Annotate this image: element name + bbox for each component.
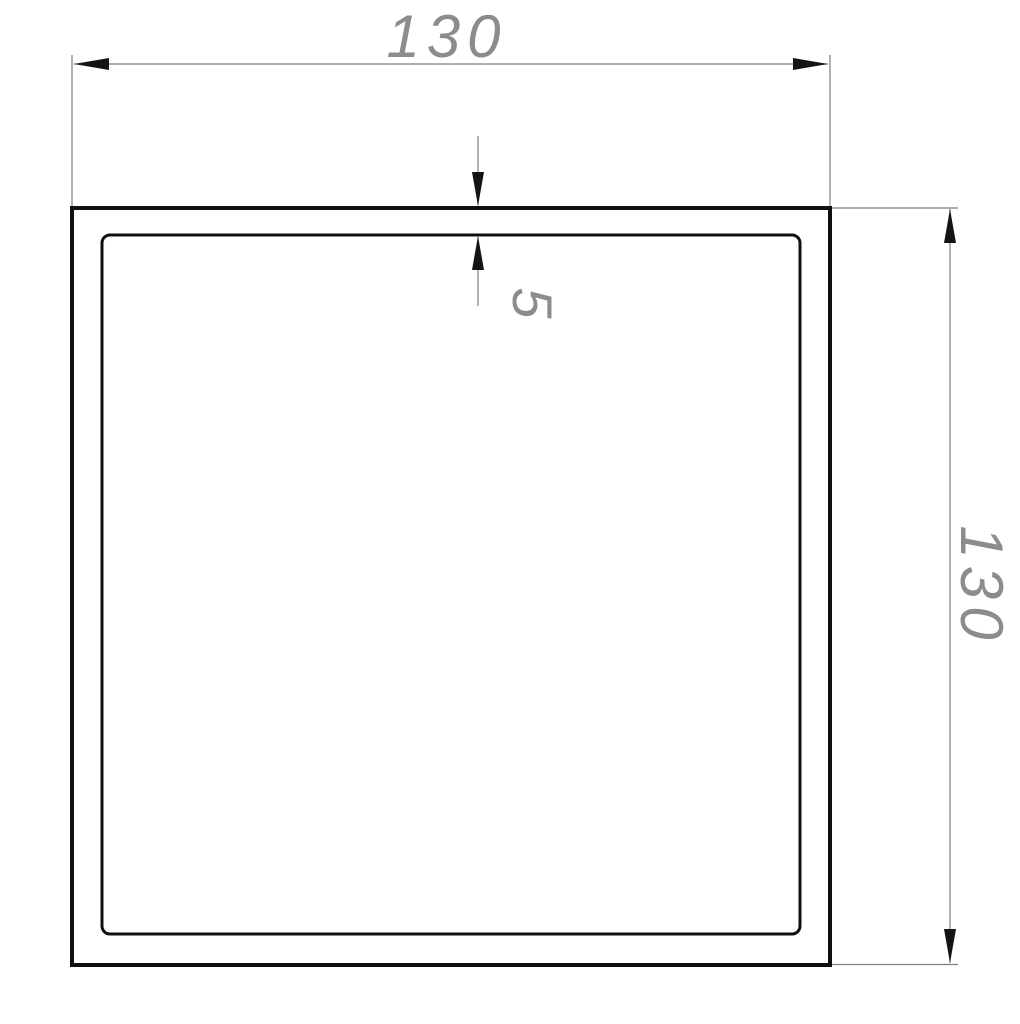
wall-thickness-label: 5 [501, 287, 564, 319]
arrow-left-icon [74, 58, 109, 70]
arrow-down-icon [472, 172, 484, 206]
width-dimension-label: 130 [386, 3, 507, 70]
width-dimension: 130 [72, 3, 830, 206]
drawing-canvas: 130 130 5 [0, 0, 1020, 1024]
technical-drawing: 130 130 5 [0, 0, 1020, 1024]
arrow-right-icon [793, 58, 828, 70]
height-dimension: 130 [832, 208, 1015, 965]
height-dimension-label: 130 [948, 525, 1015, 646]
arrow-down-icon [944, 929, 956, 963]
arrow-up-icon [944, 209, 956, 243]
tube-inner-profile [102, 235, 800, 934]
